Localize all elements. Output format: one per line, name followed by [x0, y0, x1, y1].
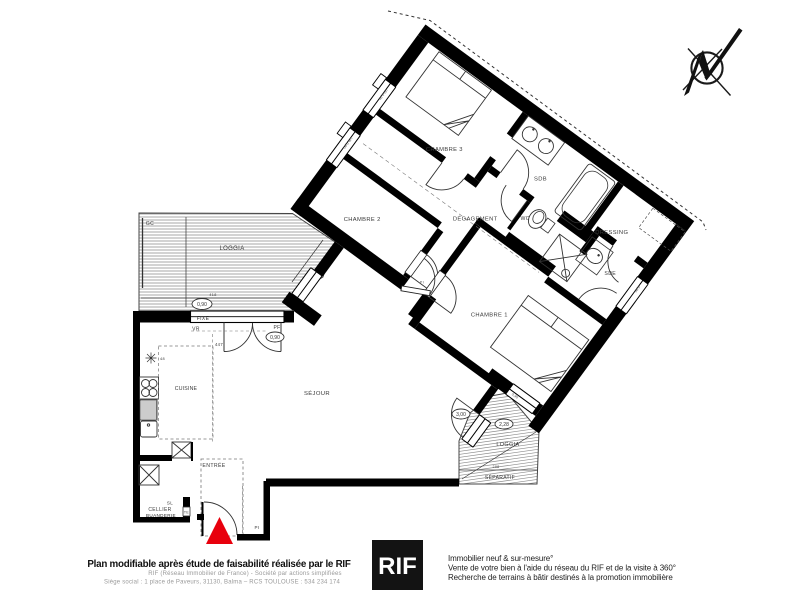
svg-text:SÉPARATIF: SÉPARATIF [485, 474, 515, 481]
svg-text:CHAMBRE 1: CHAMBRE 1 [471, 313, 508, 319]
svg-text:SL: SL [167, 501, 173, 506]
svg-text:DÉGAGEMENT: DÉGAGEMENT [453, 216, 498, 223]
svg-text:0,90: 0,90 [197, 302, 207, 308]
svg-text:298: 298 [492, 465, 499, 469]
svg-text:CUISINE: CUISINE [175, 386, 198, 392]
svg-text:GC: GC [146, 221, 154, 227]
svg-text:ENTRÉE: ENTRÉE [202, 462, 225, 469]
svg-text:LOGGIA: LOGGIA [219, 246, 244, 252]
svg-text:BUANDERIE: BUANDERIE [146, 513, 176, 518]
svg-text:SÉJOUR: SÉJOUR [304, 390, 330, 397]
svg-text:PI: PI [420, 280, 424, 284]
svg-text:SDB: SDB [534, 177, 547, 183]
svg-text:TE: TE [184, 511, 189, 515]
svg-text:SDE: SDE [604, 271, 616, 277]
svg-text:Plan modifiable après étude de: Plan modifiable après étude de faisabili… [87, 559, 351, 570]
svg-text:DRESSING: DRESSING [595, 230, 628, 236]
svg-text:0,90: 0,90 [270, 335, 280, 341]
svg-text:PF: PF [273, 325, 280, 331]
svg-text:RIF: RIF [378, 553, 417, 580]
svg-text:447: 447 [215, 342, 223, 347]
svg-text:CHAMBRE 3: CHAMBRE 3 [426, 147, 463, 153]
svg-text:Immobilier neuf & sur-mesure°: Immobilier neuf & sur-mesure° [448, 554, 553, 563]
svg-text:FIXE: FIXE [197, 316, 210, 322]
svg-text:WC: WC [521, 216, 530, 222]
svg-text:LOGGIA: LOGGIA [496, 442, 519, 448]
svg-text:Vente de votre bien à l'aide d: Vente de votre bien à l'aide du réseau d… [448, 564, 676, 573]
svg-text:PI: PI [255, 525, 260, 530]
svg-text:2,28: 2,28 [499, 422, 509, 428]
svg-text:Recherche de terrains à bâtir: Recherche de terrains à bâtir destinés à… [448, 573, 673, 582]
svg-text:CHAMBRE 2: CHAMBRE 2 [344, 217, 381, 223]
svg-text:48: 48 [160, 357, 165, 361]
svg-text:418: 418 [209, 293, 216, 297]
svg-text:Siège social : 1 place de Pave: Siège social : 1 place de Paveurs, 31130… [104, 580, 340, 586]
svg-text:RIF (Réseau Immobilier de Fran: RIF (Réseau Immobilier de France) - Soci… [148, 571, 341, 577]
svg-text:VR: VR [192, 327, 200, 333]
svg-text:3,00: 3,00 [456, 412, 466, 418]
